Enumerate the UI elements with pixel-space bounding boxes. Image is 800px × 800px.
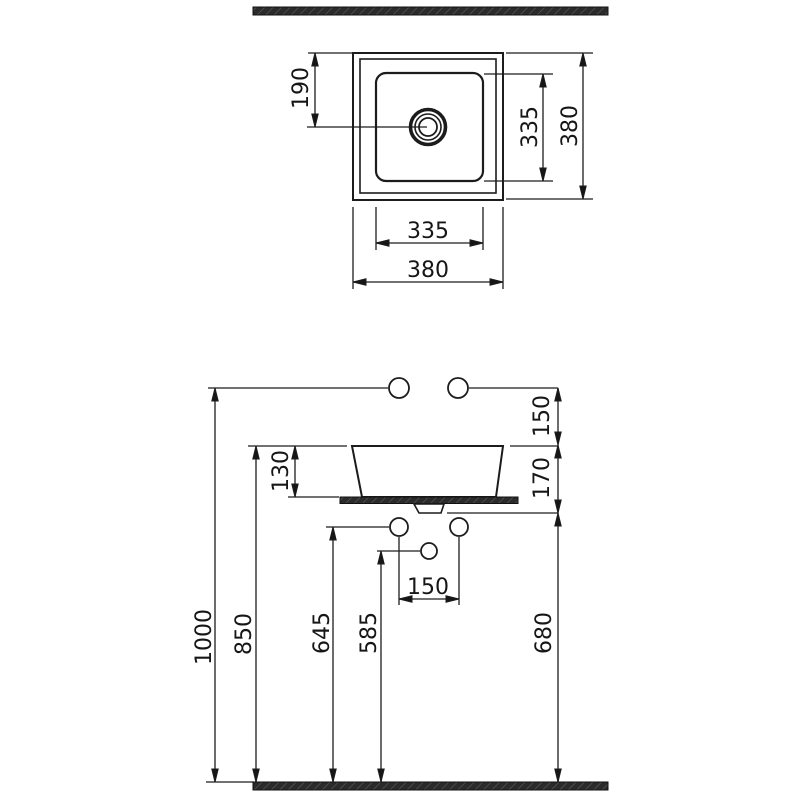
top-view-extension-lines [307,53,593,289]
dim-label-inner-width: 335 [407,219,449,244]
floor-section-bar [253,782,608,790]
dim-label-rim-height: 850 [232,613,257,655]
dim-label-basin-height: 130 [269,450,294,492]
dim-label-overall-width: 380 [407,258,449,283]
drain-fitting [414,504,444,513]
dim-label-inner-height: 335 [518,106,543,148]
dim-label-overall-height: 380 [558,105,583,147]
dim-label-rim-to-counter: 170 [530,457,555,499]
dim-label-overall-height: 1000 [192,609,217,665]
countertop-bar [340,497,518,504]
side-view-labels: 150 170 130 1000 850 645 585 680 150 [192,395,557,665]
top-view-labels: 190 335 380 335 380 [289,67,583,283]
dim-label-drain-offset: 190 [289,67,314,109]
side-view: 150 170 130 1000 850 645 585 680 150 [192,378,561,782]
technical-drawing-page: 190 335 380 335 380 [0,0,800,800]
dim-label-faucet-above-rim: 150 [530,395,555,437]
side-view-dimension-lines [215,388,558,782]
basin-profile [352,446,503,497]
wall-section-bar [253,7,608,15]
drain-outlet-hole [421,543,437,559]
dim-label-hole-height: 645 [310,612,335,654]
dim-label-drain-height: 585 [357,612,382,654]
side-view-arrows [212,388,561,782]
washbasin-dimension-drawing: 190 335 380 335 380 [0,0,800,800]
mounting-holes [390,518,468,559]
faucet-holes [389,378,468,398]
dim-label-hole-spacing: 150 [407,575,449,600]
dim-label-counter-bottom-height: 680 [532,612,557,654]
top-view: 190 335 380 335 380 [289,53,593,289]
side-view-extension-lines [206,388,558,782]
